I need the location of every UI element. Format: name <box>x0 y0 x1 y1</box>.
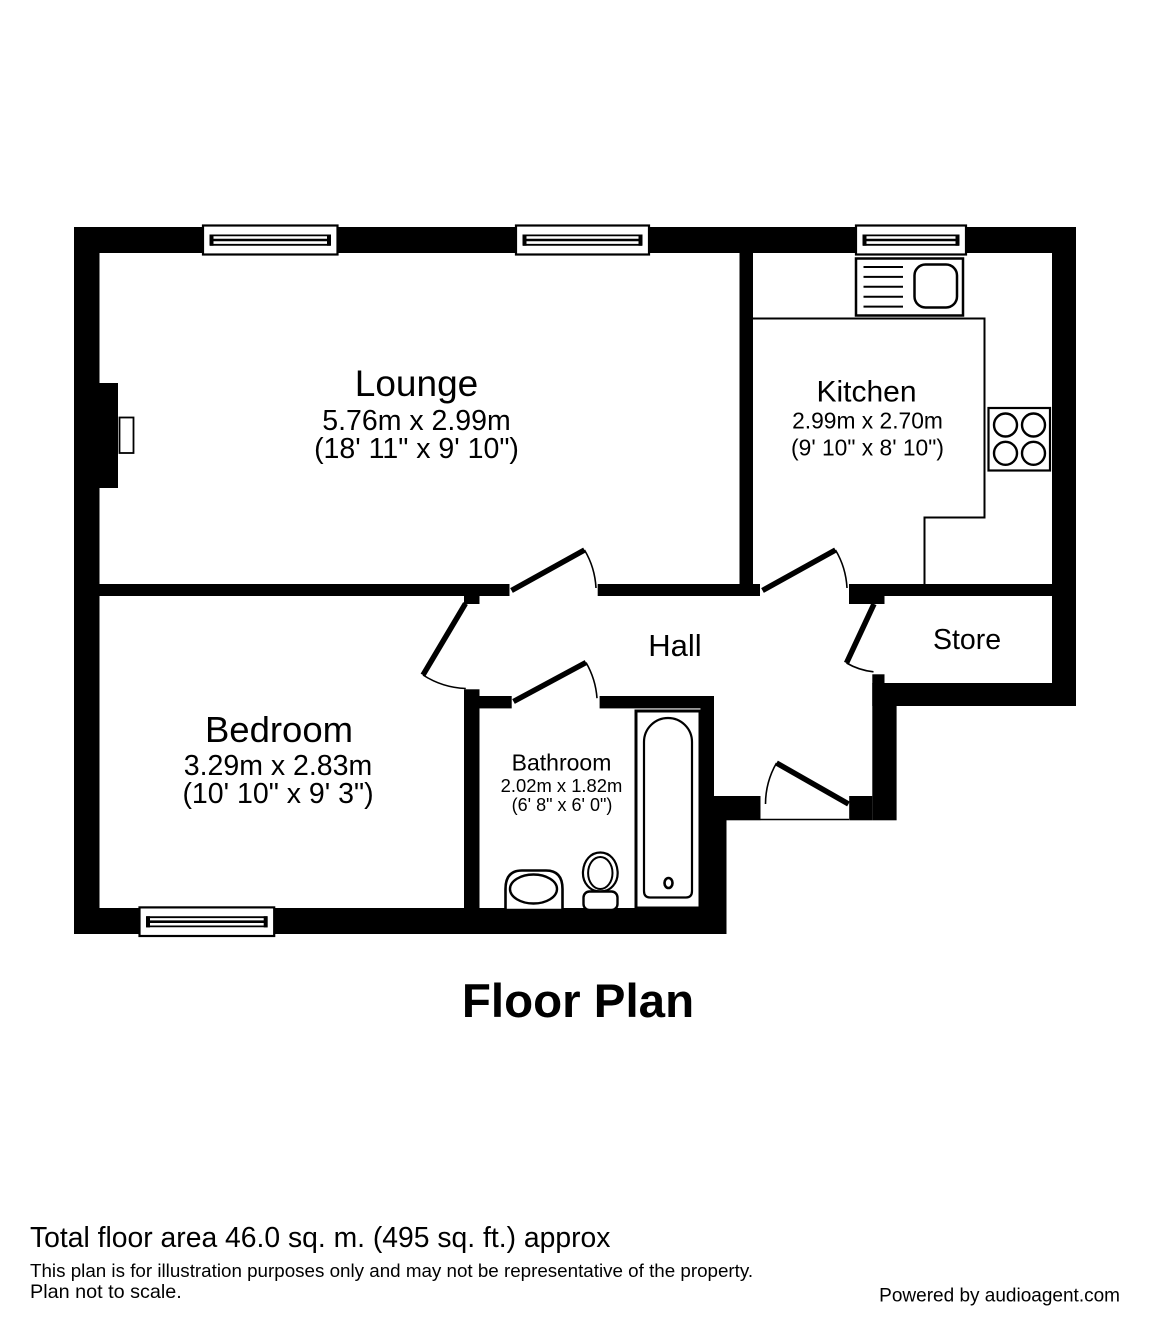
svg-text:(6' 8" x 6' 0"): (6' 8" x 6' 0") <box>512 795 613 815</box>
svg-text:(9' 10" x 8' 10"): (9' 10" x 8' 10") <box>791 435 944 461</box>
svg-text:Floor Plan: Floor Plan <box>462 975 694 1028</box>
svg-text:Plan not to scale.: Plan not to scale. <box>30 1281 182 1303</box>
svg-text:Store: Store <box>933 624 1001 656</box>
svg-text:2.02m x 1.82m: 2.02m x 1.82m <box>501 775 623 796</box>
svg-text:Hall: Hall <box>648 628 701 663</box>
svg-text:Total floor area 46.0 sq. m. (: Total floor area 46.0 sq. m. (495 sq. ft… <box>30 1221 610 1253</box>
svg-text:(18' 11" x 9' 10"): (18' 11" x 9' 10") <box>314 433 519 465</box>
svg-text:Bathroom: Bathroom <box>512 750 612 776</box>
svg-text:Powered by audioagent.com: Powered by audioagent.com <box>879 1286 1120 1307</box>
svg-text:This plan is for illustration: This plan is for illustration purposes o… <box>30 1260 753 1281</box>
svg-text:Bedroom: Bedroom <box>205 709 353 750</box>
svg-text:Lounge: Lounge <box>355 363 478 404</box>
svg-text:2.99m x 2.70m: 2.99m x 2.70m <box>792 408 943 434</box>
svg-text:Kitchen: Kitchen <box>816 376 916 409</box>
svg-text:(10' 10" x 9' 3"): (10' 10" x 9' 3") <box>182 778 373 810</box>
